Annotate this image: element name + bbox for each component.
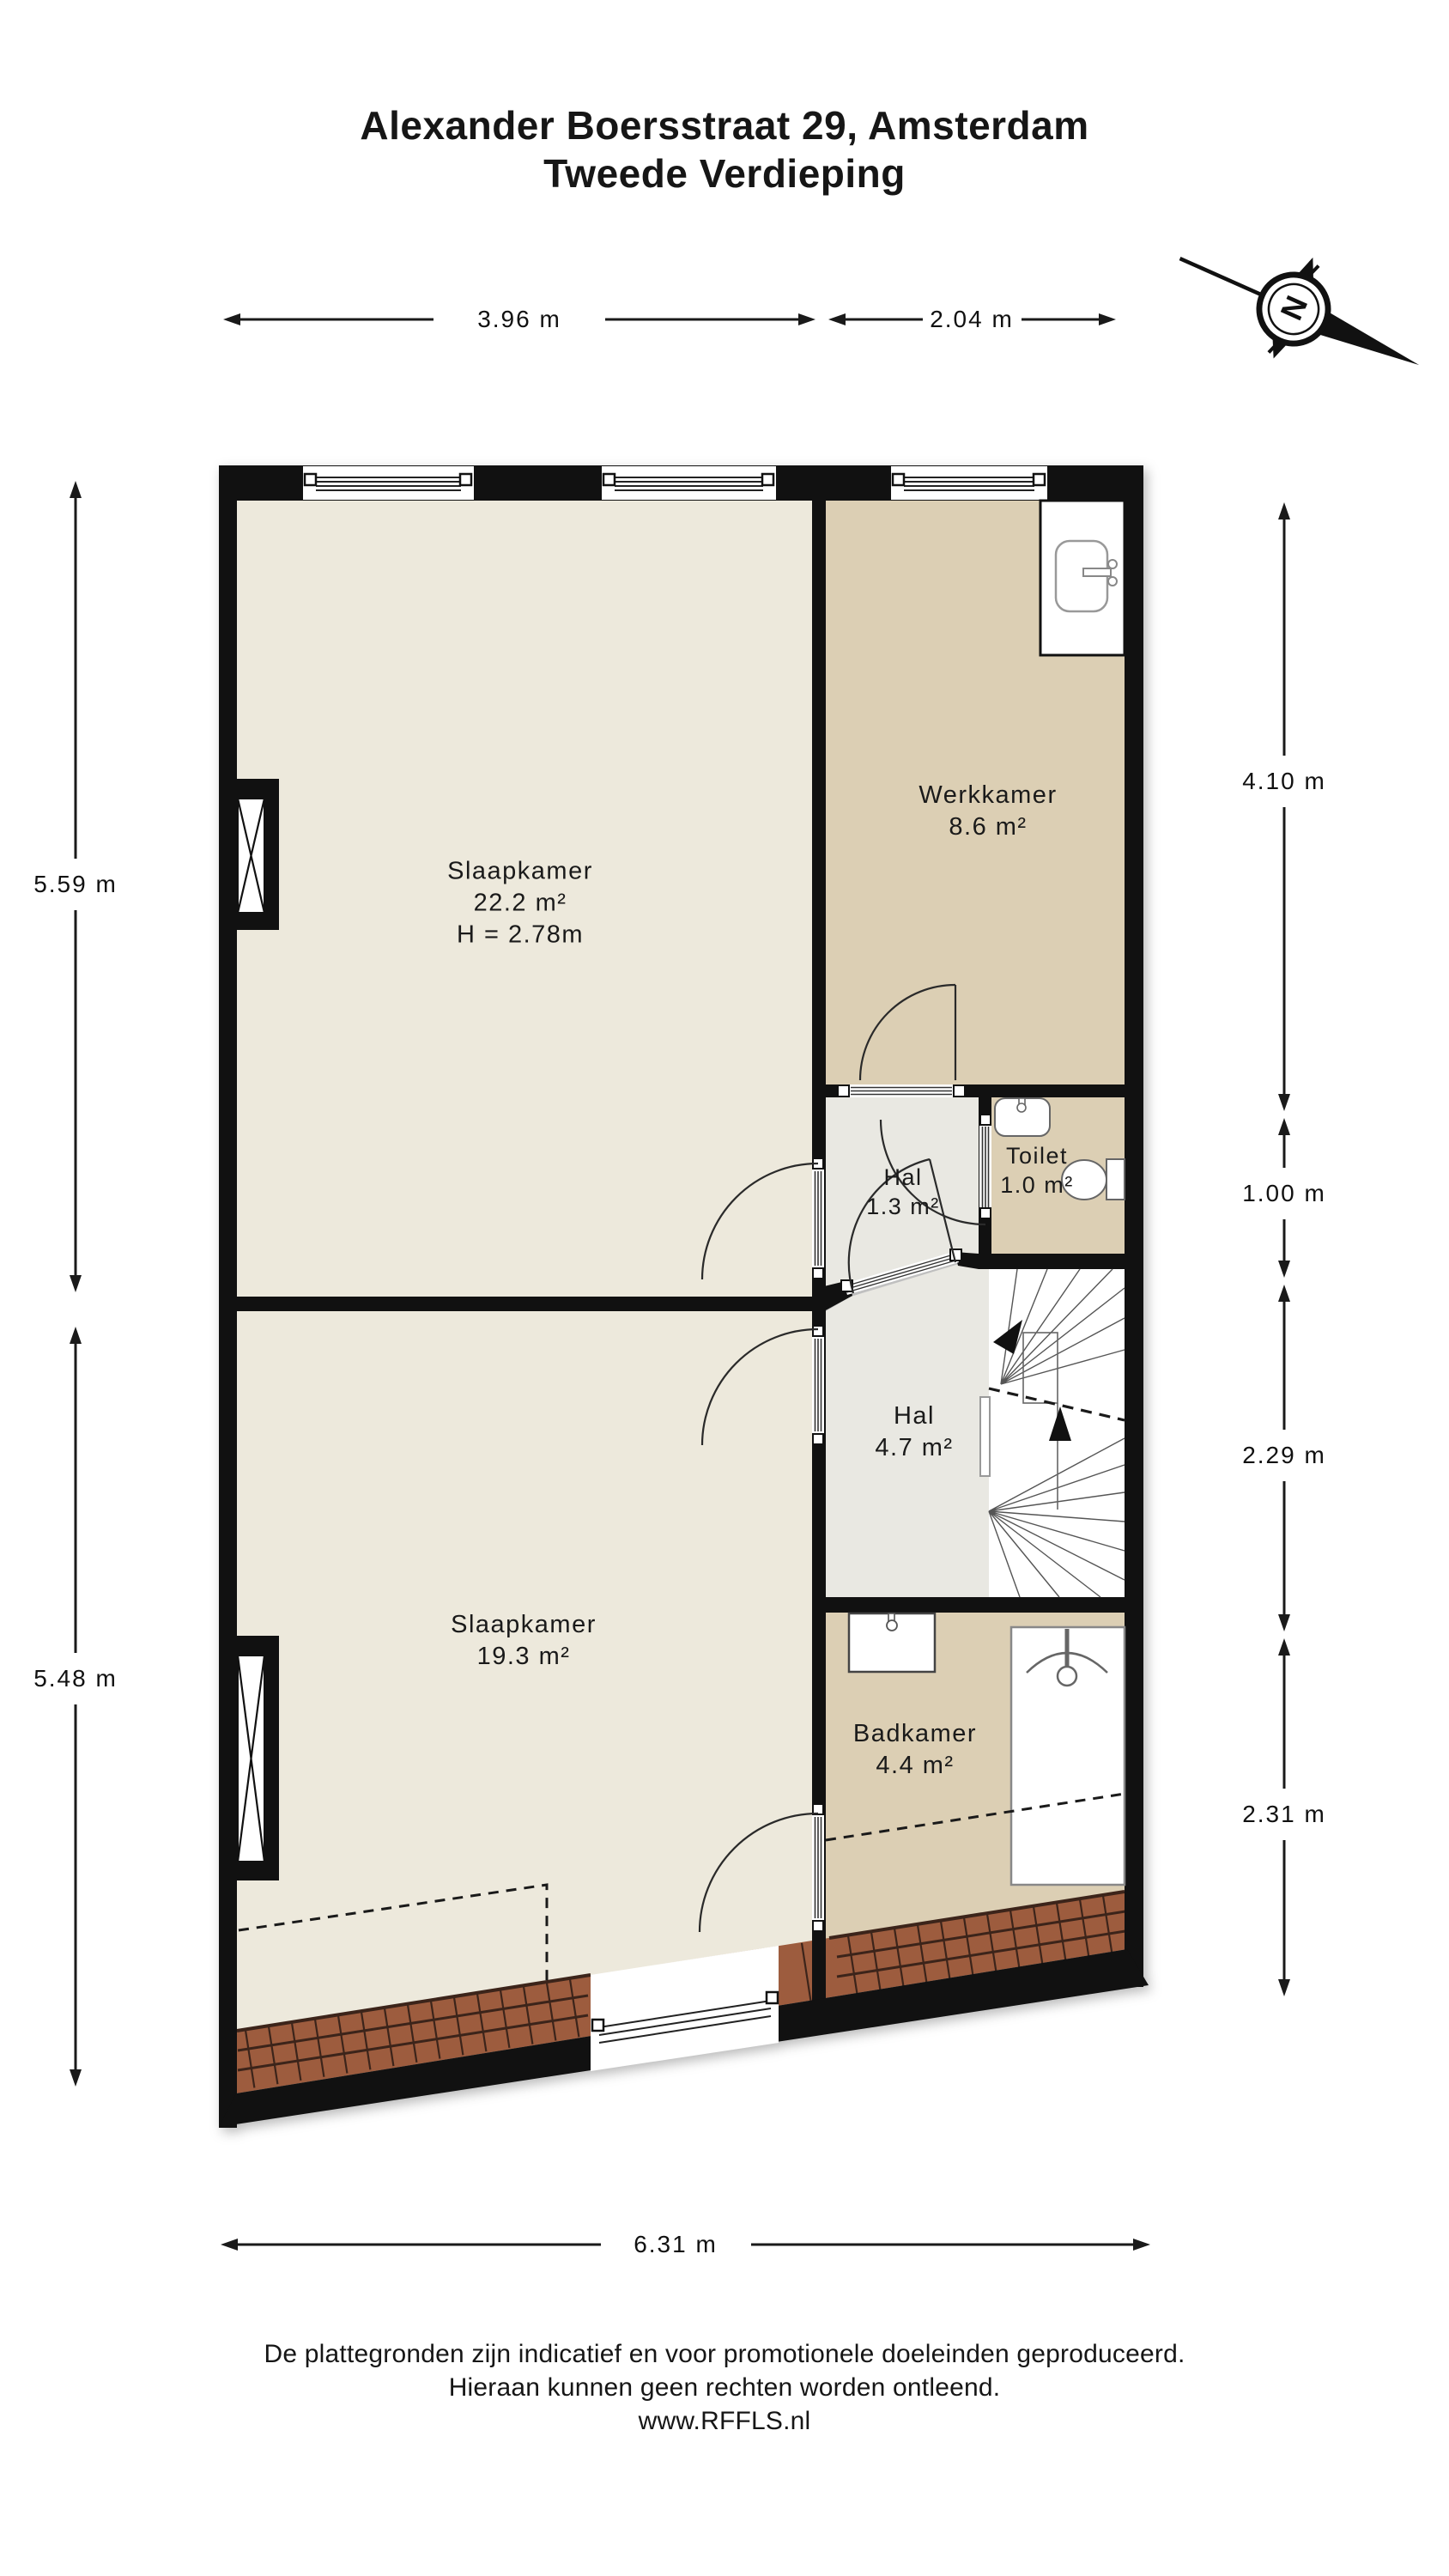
room-area: 1.3 m² [866, 1192, 940, 1221]
room-area: 8.6 m² [919, 811, 1057, 843]
room-area: 4.7 m² [875, 1432, 953, 1464]
floorplan-page: Alexander Boersstraat 29, Amsterdam Twee… [0, 0, 1449, 2576]
room-name: Slaapkamer [451, 1609, 597, 1641]
dim-left-lower: 5.48 m [28, 1665, 123, 1692]
dim-bottom: 6.31 m [628, 2231, 723, 2258]
room-label-hal-2: Hal 4.7 m² [875, 1400, 953, 1464]
room-label-werkkamer: Werkkamer 8.6 m² [919, 780, 1057, 843]
room-area: 4.4 m² [853, 1750, 977, 1782]
room-area: 22.2 m² [447, 888, 593, 920]
dim-top-right: 2.04 m [925, 306, 1019, 333]
disclaimer: De plattegronden zijn indicatief en voor… [0, 2337, 1449, 2438]
room-name: Werkkamer [919, 780, 1057, 811]
room-name: Slaapkamer [447, 856, 593, 888]
room-ceiling-height: H = 2.78m [447, 920, 593, 951]
disclaimer-line-2: Hieraan kunnen geen rechten worden ontle… [0, 2371, 1449, 2404]
dimension-arrows [70, 313, 1290, 2251]
room-label-toilet: Toilet 1.0 m² [1000, 1141, 1074, 1200]
dim-left-upper: 5.59 m [28, 871, 123, 898]
room-label-badkamer: Badkamer 4.4 m² [853, 1718, 977, 1782]
dim-right-1: 4.10 m [1237, 768, 1331, 795]
room-area: 19.3 m² [451, 1641, 597, 1673]
room-name: Badkamer [853, 1718, 977, 1750]
dimensions-overlay [0, 0, 1449, 2576]
room-name: Hal [875, 1400, 953, 1432]
room-label-slaapkamer-2: Slaapkamer 19.3 m² [451, 1609, 597, 1673]
dim-right-3: 2.29 m [1237, 1442, 1331, 1469]
disclaimer-line-1: De plattegronden zijn indicatief en voor… [0, 2337, 1449, 2371]
room-name: Hal [866, 1163, 940, 1192]
dim-right-4: 2.31 m [1237, 1801, 1331, 1828]
dim-top-left: 3.96 m [472, 306, 567, 333]
room-name: Toilet [1000, 1141, 1074, 1170]
room-label-slaapkamer-1: Slaapkamer 22.2 m² H = 2.78m [447, 856, 593, 951]
room-label-hal-1: Hal 1.3 m² [866, 1163, 940, 1221]
disclaimer-url: www.RFFLS.nl [0, 2404, 1449, 2438]
room-area: 1.0 m² [1000, 1170, 1074, 1200]
dim-right-2: 1.00 m [1237, 1180, 1331, 1207]
